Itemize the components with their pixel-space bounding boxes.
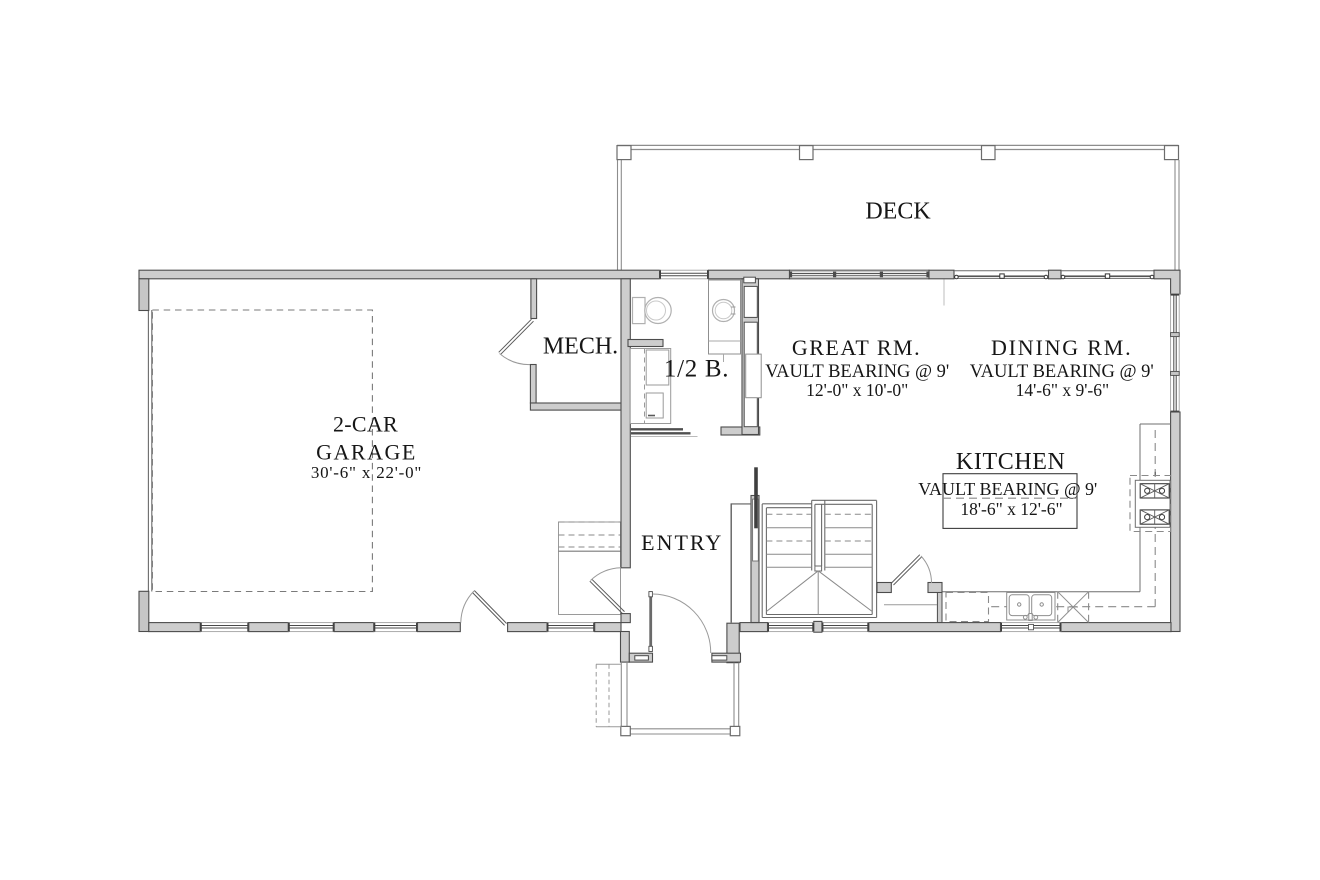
svg-text:VAULT BEARING @ 9': VAULT BEARING @ 9' <box>918 479 1097 499</box>
svg-text:14'-6" x 9'-6": 14'-6" x 9'-6" <box>1016 380 1110 400</box>
svg-text:1/2 B.: 1/2 B. <box>664 356 729 383</box>
svg-text:DECK: DECK <box>865 198 931 224</box>
svg-text:VAULT BEARING @ 9': VAULT BEARING @ 9' <box>970 362 1154 382</box>
svg-text:KITCHEN: KITCHEN <box>956 449 1066 475</box>
svg-text:GREAT RM.: GREAT RM. <box>792 335 921 360</box>
svg-text:DINING RM.: DINING RM. <box>991 335 1132 360</box>
svg-text:30'-6" x 22'-0": 30'-6" x 22'-0" <box>311 463 422 482</box>
svg-text:2-CAR: 2-CAR <box>333 412 398 437</box>
svg-text:18'-6" x 12'-6": 18'-6" x 12'-6" <box>960 499 1062 519</box>
svg-text:MECH.: MECH. <box>543 334 618 360</box>
svg-text:12'-0" x 10'-0": 12'-0" x 10'-0" <box>806 380 908 400</box>
svg-text:ENTRY: ENTRY <box>641 530 723 555</box>
svg-text:GARAGE: GARAGE <box>316 440 417 465</box>
svg-text:VAULT BEARING @ 9': VAULT BEARING @ 9' <box>765 362 949 382</box>
